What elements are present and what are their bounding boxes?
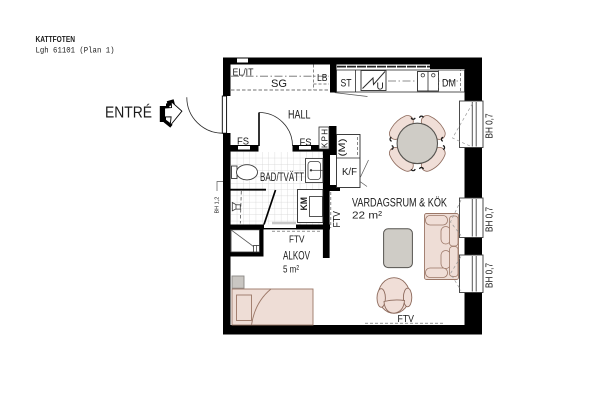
svg-text:BAD/TVÄTT: BAD/TVÄTT xyxy=(260,172,304,184)
svg-text:BH 0,7: BH 0,7 xyxy=(485,113,496,138)
svg-text:ALKOV: ALKOV xyxy=(283,251,310,263)
svg-text:FTV: FTV xyxy=(398,314,415,325)
svg-text:FTV: FTV xyxy=(332,211,343,228)
svg-text:BH 0,7: BH 0,7 xyxy=(485,263,496,288)
svg-text:Lgh 61101 (Plan 1): Lgh 61101 (Plan 1) xyxy=(36,47,115,56)
svg-text:KM: KM xyxy=(299,197,310,211)
svg-text:EL/IT: EL/IT xyxy=(233,68,254,79)
svg-text:ST: ST xyxy=(341,78,352,90)
svg-text:FS: FS xyxy=(300,137,312,149)
svg-text:U: U xyxy=(377,82,384,93)
svg-text:(M): (M) xyxy=(337,139,347,157)
svg-text:FTV: FTV xyxy=(289,235,305,246)
svg-text:KATTFOTEN: KATTFOTEN xyxy=(36,35,76,44)
svg-text:BH 0,7: BH 0,7 xyxy=(485,207,496,232)
svg-text:22 m²: 22 m² xyxy=(352,210,383,222)
svg-text:5 m²: 5 m² xyxy=(283,264,299,276)
svg-text:BH 1,2: BH 1,2 xyxy=(215,197,221,214)
svg-text:K/F: K/F xyxy=(342,166,357,178)
svg-text:DM: DM xyxy=(442,78,456,90)
svg-text:VARDAGSRUM & KÖK: VARDAGSRUM & KÖK xyxy=(352,198,447,210)
svg-text:FS: FS xyxy=(237,136,249,148)
svg-text:LB: LB xyxy=(317,73,328,84)
svg-text:KPH: KPH xyxy=(321,129,330,148)
svg-text:SG: SG xyxy=(271,78,287,90)
svg-text:ENTRÉ: ENTRÉ xyxy=(105,105,152,122)
svg-text:HALL: HALL xyxy=(288,110,311,122)
